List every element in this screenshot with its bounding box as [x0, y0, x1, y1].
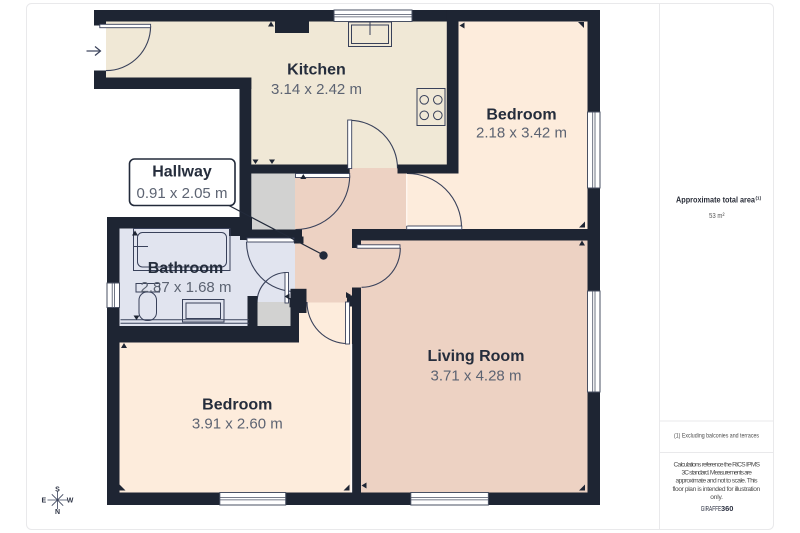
- svg-text:0.91 x 2.05 m: 0.91 x 2.05 m: [137, 185, 228, 202]
- svg-text:2.87 x 1.68 m: 2.87 x 1.68 m: [141, 279, 232, 296]
- svg-text:3.71 x 4.28 m: 3.71 x 4.28 m: [431, 368, 522, 385]
- svg-text:N: N: [55, 509, 60, 516]
- svg-text:3C standard. Measurements are: 3C standard. Measurements are: [682, 470, 753, 477]
- svg-text:floor plan is intended for ill: floor plan is intended for illustration: [673, 486, 761, 493]
- svg-text:E: E: [41, 498, 46, 505]
- svg-text:Approximate total area: Approximate total area: [676, 196, 756, 205]
- svg-text:Bedroom: Bedroom: [486, 107, 556, 124]
- svg-text:W: W: [67, 498, 74, 505]
- svg-text:Calculations reference the RIC: Calculations reference the RICS IPMS: [674, 462, 761, 469]
- svg-text:only.: only.: [710, 494, 723, 501]
- svg-text:360: 360: [721, 506, 734, 513]
- svg-text:53 m²: 53 m²: [709, 211, 725, 220]
- svg-text:approximate and not to scale.: approximate and not to scale. This: [676, 478, 759, 485]
- svg-text:3.91 x 2.60 m: 3.91 x 2.60 m: [192, 416, 283, 433]
- svg-text:S: S: [55, 486, 60, 493]
- svg-text:2.18 x 3.42 m: 2.18 x 3.42 m: [476, 125, 567, 142]
- svg-text:Kitchen: Kitchen: [287, 62, 346, 79]
- svg-text:Bathroom: Bathroom: [148, 260, 224, 277]
- svg-text:Living Room: Living Room: [428, 348, 525, 365]
- svg-text:(1): (1): [756, 196, 762, 201]
- svg-text:Bedroom: Bedroom: [202, 397, 272, 414]
- svg-text:Hallway: Hallway: [152, 164, 212, 181]
- svg-text:3.14 x 2.42 m: 3.14 x 2.42 m: [271, 81, 362, 98]
- svg-text:GIRAFFE: GIRAFFE: [701, 506, 722, 513]
- svg-text:(1) Excluding balconies and te: (1) Excluding balconies and terraces: [674, 433, 760, 440]
